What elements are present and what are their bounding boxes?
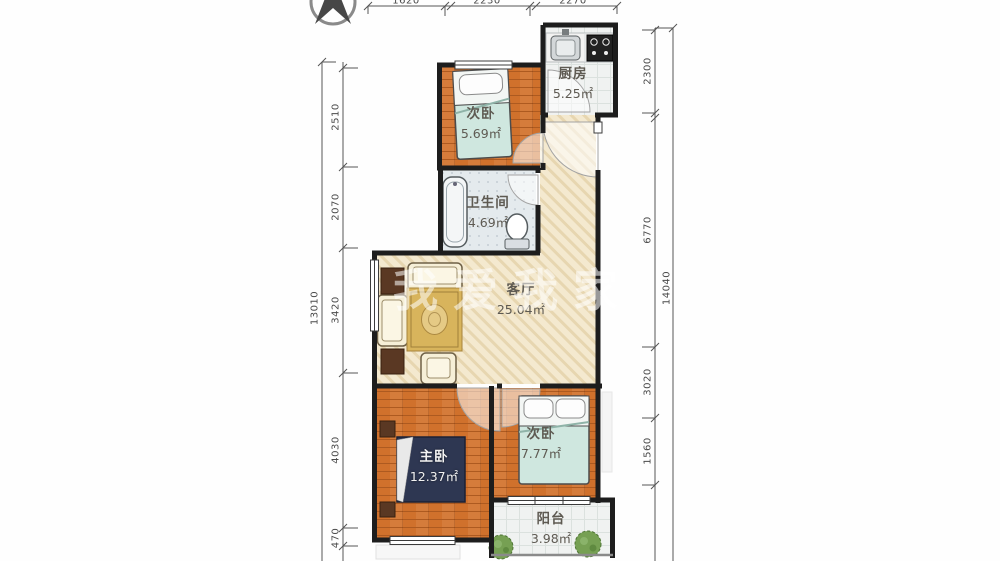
kitchen-counter <box>546 29 613 62</box>
room-area: 5.69㎡ <box>461 125 501 143</box>
nightstand <box>380 421 395 437</box>
dim-right-1: 6770 <box>643 216 654 243</box>
plant-icon <box>575 531 601 557</box>
dim-top-1: 2230 <box>473 0 500 7</box>
dim-top-2: 2270 <box>559 0 586 7</box>
window-master-bottom <box>390 537 455 545</box>
room-area: 4.69㎡ <box>466 214 510 232</box>
room-label-kitchen: 厨房 5.25㎡ <box>553 65 593 103</box>
balcony-sliding-door <box>508 497 590 505</box>
window-bedroom-top <box>455 61 512 69</box>
room-name: 主卧 <box>410 448 458 468</box>
north-compass-icon <box>311 0 355 24</box>
dim-line-right-segments <box>642 26 659 561</box>
room-label-master: 主卧 12.37㎡ <box>410 448 458 486</box>
dim-line-left-segments <box>339 62 358 561</box>
rug <box>407 288 462 351</box>
window-sill-bottom <box>376 545 460 559</box>
dim-right-3: 1560 <box>643 437 654 464</box>
dim-left-1: 2070 <box>331 193 342 220</box>
dim-left-3: 4030 <box>331 436 342 463</box>
dim-top-0: 1620 <box>392 0 419 7</box>
window-living-left <box>371 260 379 331</box>
room-name: 次卧 <box>521 425 561 445</box>
dim-left-4: 470 <box>331 528 342 549</box>
dim-right-2: 3020 <box>643 368 654 395</box>
room-area: 3.98㎡ <box>531 530 571 548</box>
room-label-bathroom: 卫生间 4.69㎡ <box>466 194 510 232</box>
room-name: 客厅 <box>497 281 545 301</box>
dim-right-total: 14040 <box>662 271 673 305</box>
dim-left-total: 13010 <box>310 291 321 325</box>
pillow <box>459 73 503 95</box>
dim-right-0: 2300 <box>643 57 654 84</box>
room-area: 7.77㎡ <box>521 445 561 463</box>
dim-left-0: 2510 <box>331 103 342 130</box>
room-name: 厨房 <box>553 65 593 85</box>
room-name: 次卧 <box>461 105 501 125</box>
room-name: 阳台 <box>531 510 571 530</box>
room-area: 25.04㎡ <box>497 301 545 319</box>
room-label-bedroom-right: 次卧 7.77㎡ <box>521 425 561 463</box>
bathtub-icon <box>443 177 467 247</box>
stove-icon <box>587 35 613 61</box>
room-name: 卫生间 <box>466 194 510 214</box>
room-label-balcony: 阳台 3.98㎡ <box>531 510 571 548</box>
room-area: 5.25㎡ <box>553 85 593 103</box>
side-table <box>381 349 404 374</box>
room-area: 12.37㎡ <box>410 468 458 486</box>
window-sill-right <box>602 392 612 472</box>
side-table <box>381 268 404 294</box>
nightstand <box>380 502 395 517</box>
window-hall-right <box>594 122 602 133</box>
room-label-bedroom-top: 次卧 5.69㎡ <box>461 105 501 143</box>
pillow <box>556 399 585 418</box>
dim-left-2: 3420 <box>331 296 342 323</box>
pillow <box>524 399 553 418</box>
room-label-living: 客厅 25.04㎡ <box>497 281 545 319</box>
floor-plan-screenshot: 1620 2230 2270 13010 2510 2070 3420 4030… <box>0 0 1000 561</box>
